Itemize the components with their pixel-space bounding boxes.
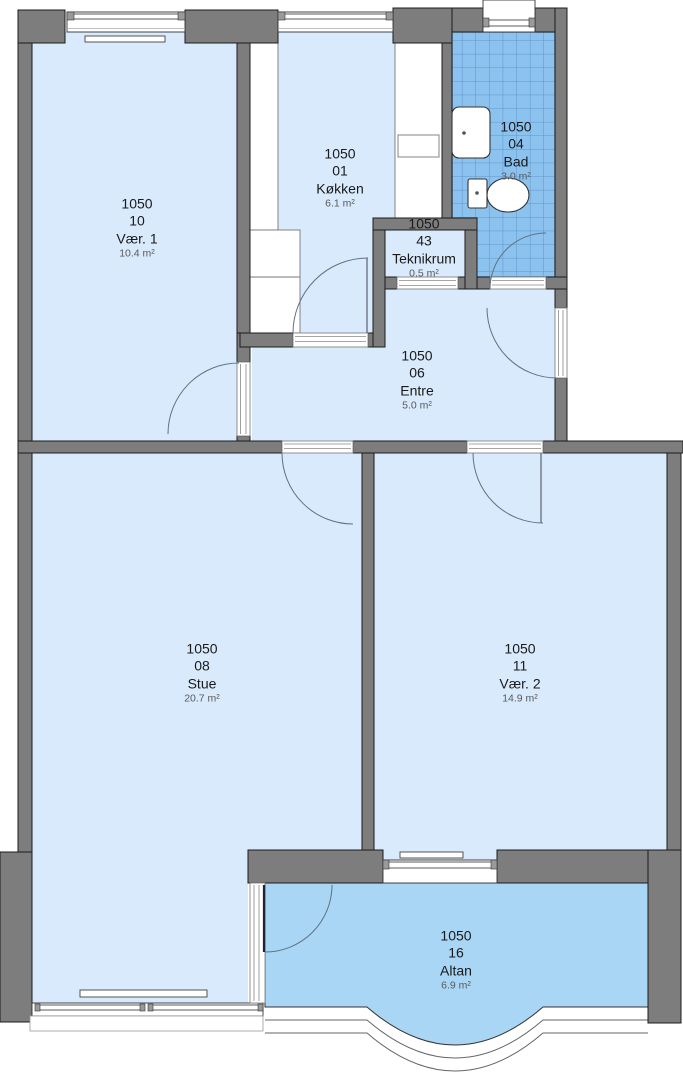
wall-segment (237, 43, 250, 333)
room-code: 1050 (440, 927, 472, 944)
window-bad (483, 0, 535, 32)
wall-segment (465, 230, 477, 289)
room-area: 20.7 m² (184, 693, 220, 706)
kitchen-counter-right (395, 43, 442, 218)
room-area: 3.0 m² (500, 171, 531, 184)
room-area: 14.9 m² (499, 693, 540, 706)
floor-plan: 1050 10 Vær. 1 10.4 m² 1050 01 Køkken 6.… (0, 0, 683, 1080)
wall-segment (477, 277, 490, 289)
room-number: 06 (400, 365, 433, 382)
room-name: Stue (184, 675, 220, 692)
room-label-vaer2: 1050 11 Vær. 2 14.9 m² (499, 640, 540, 705)
window-stue-south (30, 1003, 263, 1031)
room-number: 10 (116, 213, 157, 230)
room-name: Entre (400, 382, 433, 399)
room-code: 1050 (184, 640, 220, 657)
room-code: 1050 (500, 118, 531, 135)
room-label-vaer1: 1050 10 Vær. 1 10.4 m² (116, 195, 157, 260)
wall-segment (458, 277, 465, 289)
room-name: Vær. 1 (116, 230, 157, 247)
window-kokken (278, 12, 393, 32)
wall-segment (185, 10, 278, 43)
wall-segment (237, 436, 250, 441)
room-name: Altan (440, 962, 472, 979)
wall-segment (555, 378, 567, 441)
radiator-vaer2 (400, 852, 463, 858)
wall-segment (546, 277, 567, 289)
window-vaer1 (67, 12, 185, 32)
room-code: 1050 (316, 145, 363, 162)
room-name: Bad (500, 153, 531, 170)
room-area: 0.5 m² (392, 268, 456, 281)
window-vaer2-altan (383, 860, 497, 883)
wall-segment (452, 8, 483, 32)
room-number: 08 (184, 658, 220, 675)
wall-segment (18, 441, 282, 453)
room-label-stue: 1050 08 Stue 20.7 m² (184, 640, 220, 705)
room-label-kokken: 1050 01 Køkken 6.1 m² (316, 145, 363, 210)
room-label-bad: 1050 04 Bad 3.0 m² (500, 118, 531, 183)
room-number: 43 (392, 233, 456, 250)
room-area: 10.4 m² (116, 248, 157, 261)
room-number: 01 (316, 163, 363, 180)
room-label-teknikrum: 1050 43 Teknikrum 0.5 m² (392, 215, 456, 280)
room-number: 16 (440, 945, 472, 962)
wall-segment (555, 8, 567, 308)
bathroom-sink (452, 107, 490, 158)
kitchen-counter-left-deep (250, 230, 300, 333)
room-code: 1050 (392, 215, 456, 232)
room-name: Vær. 2 (499, 675, 540, 692)
wall-segment (18, 10, 65, 43)
kitchen-counter-left (250, 43, 278, 230)
wall-segment (362, 453, 374, 850)
wall-segment (248, 850, 383, 883)
room-number: 04 (500, 136, 531, 153)
room-label-entre: 1050 06 Entre 5.0 m² (400, 347, 433, 412)
sink-drain (462, 131, 466, 135)
wall-segment (373, 218, 385, 347)
room-area: 5.0 m² (400, 400, 433, 413)
kitchen-sink (398, 135, 439, 157)
room-area: 6.9 m² (440, 980, 472, 993)
room-name: Teknikrum (392, 250, 456, 267)
wall-segment (353, 441, 467, 453)
room-code: 1050 (400, 347, 433, 364)
room-label-altan: 1050 16 Altan 6.9 m² (440, 927, 472, 992)
wall-segment (0, 852, 32, 1022)
wall-segment (667, 453, 681, 852)
radiator-vaer1 (85, 36, 165, 42)
room-number: 11 (499, 658, 540, 675)
room-code: 1050 (499, 640, 540, 657)
room-code: 1050 (116, 195, 157, 212)
wall-segment (442, 43, 452, 218)
wall-segment (240, 333, 293, 347)
wall-segment (648, 850, 681, 1023)
room-name: Køkken (316, 180, 363, 197)
wall-segment (497, 850, 648, 883)
radiator-stue (80, 990, 207, 997)
wall-segment (543, 441, 683, 453)
wall-segment (393, 8, 452, 43)
room-area: 6.1 m² (316, 198, 363, 211)
